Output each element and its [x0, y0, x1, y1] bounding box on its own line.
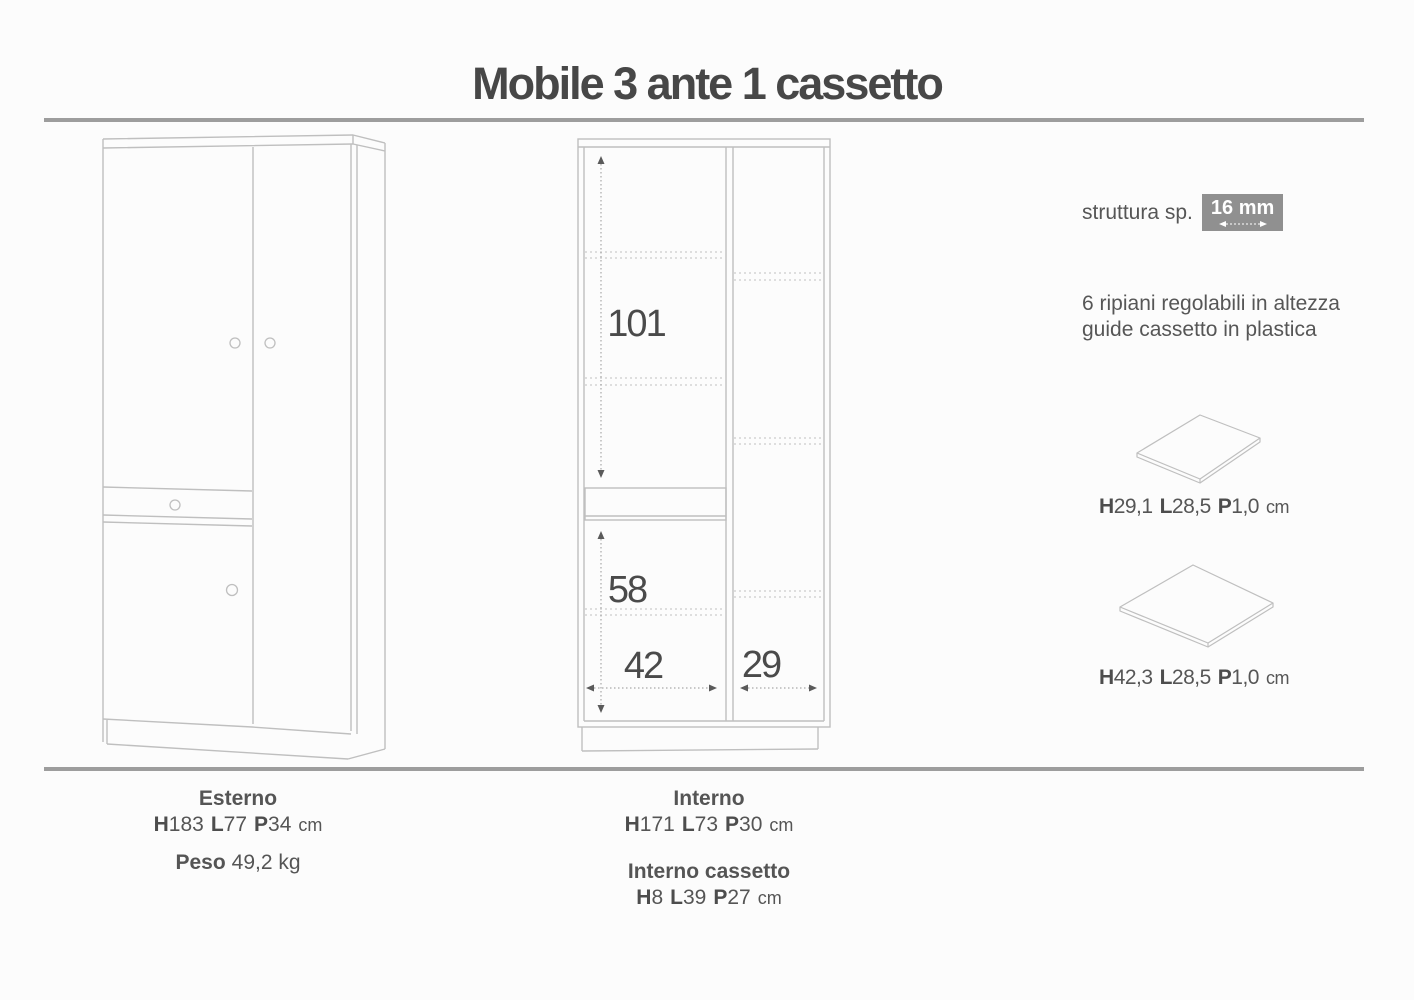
- struttura-value: 16 mm: [1211, 198, 1274, 218]
- right-door-handle-icon: [265, 338, 275, 348]
- dimension-labels: 101 58 42 29: [607, 303, 781, 687]
- dim-upper-height: 101: [607, 303, 665, 345]
- footer-divider: [44, 767, 1364, 771]
- left-door-handle-icon: [230, 338, 240, 348]
- title-divider: [44, 118, 1364, 122]
- feature-line-2: guide cassetto in plastica: [1082, 317, 1340, 343]
- page-title: Mobile 3 ante 1 cassetto: [0, 58, 1414, 110]
- dimension-arrows: [586, 156, 817, 713]
- interno-cassetto-dimensions: H8L39P27cm: [549, 885, 869, 911]
- struttura-label: struttura sp.: [1082, 201, 1193, 225]
- shelf-small-caption: H29,1L28,5P1,0cm: [1094, 495, 1294, 519]
- dim-right-width: 29: [742, 644, 781, 686]
- interno-cassetto-title: Interno cassetto: [549, 859, 869, 885]
- struttura-thickness-badge: 16 mm: [1202, 194, 1283, 231]
- interior-frame: [578, 139, 830, 751]
- door-handles: [170, 338, 275, 596]
- esterno-block: Esterno H183L77P34cm Peso49,2 kg: [78, 786, 398, 876]
- shelf-large-caption: H42,3L28,5P1,0cm: [1094, 666, 1294, 690]
- cabinet-front-view: [95, 128, 395, 768]
- width-arrow-icon: [1219, 220, 1267, 228]
- interior-drawer: [585, 488, 726, 520]
- dim-lower-height: 58: [608, 569, 647, 611]
- drawer-handle-icon: [170, 500, 180, 510]
- features-text: 6 ripiani regolabili in altezza guide ca…: [1082, 291, 1340, 343]
- dimension-lines: [594, 164, 809, 705]
- cabinet-interior-view: 101 58 42 29: [570, 132, 840, 762]
- interno-dimensions: H171L73P30cm: [549, 812, 869, 838]
- dim-left-width: 42: [624, 645, 663, 687]
- shelf-large-diagram: [1105, 556, 1295, 656]
- interno-block: Interno H171L73P30cm Interno cassetto H8…: [549, 786, 869, 911]
- peso-line: Peso49,2 kg: [78, 850, 398, 876]
- struttura-row: struttura sp. 16 mm: [1082, 194, 1283, 231]
- cabinet-outline: [103, 135, 385, 759]
- esterno-dimensions: H183L77P34cm: [78, 812, 398, 838]
- shelf-small-diagram: [1108, 404, 1293, 499]
- lower-door-handle-icon: [227, 585, 238, 596]
- feature-line-1: 6 ripiani regolabili in altezza: [1082, 291, 1340, 317]
- interno-title: Interno: [549, 786, 869, 812]
- esterno-title: Esterno: [78, 786, 398, 812]
